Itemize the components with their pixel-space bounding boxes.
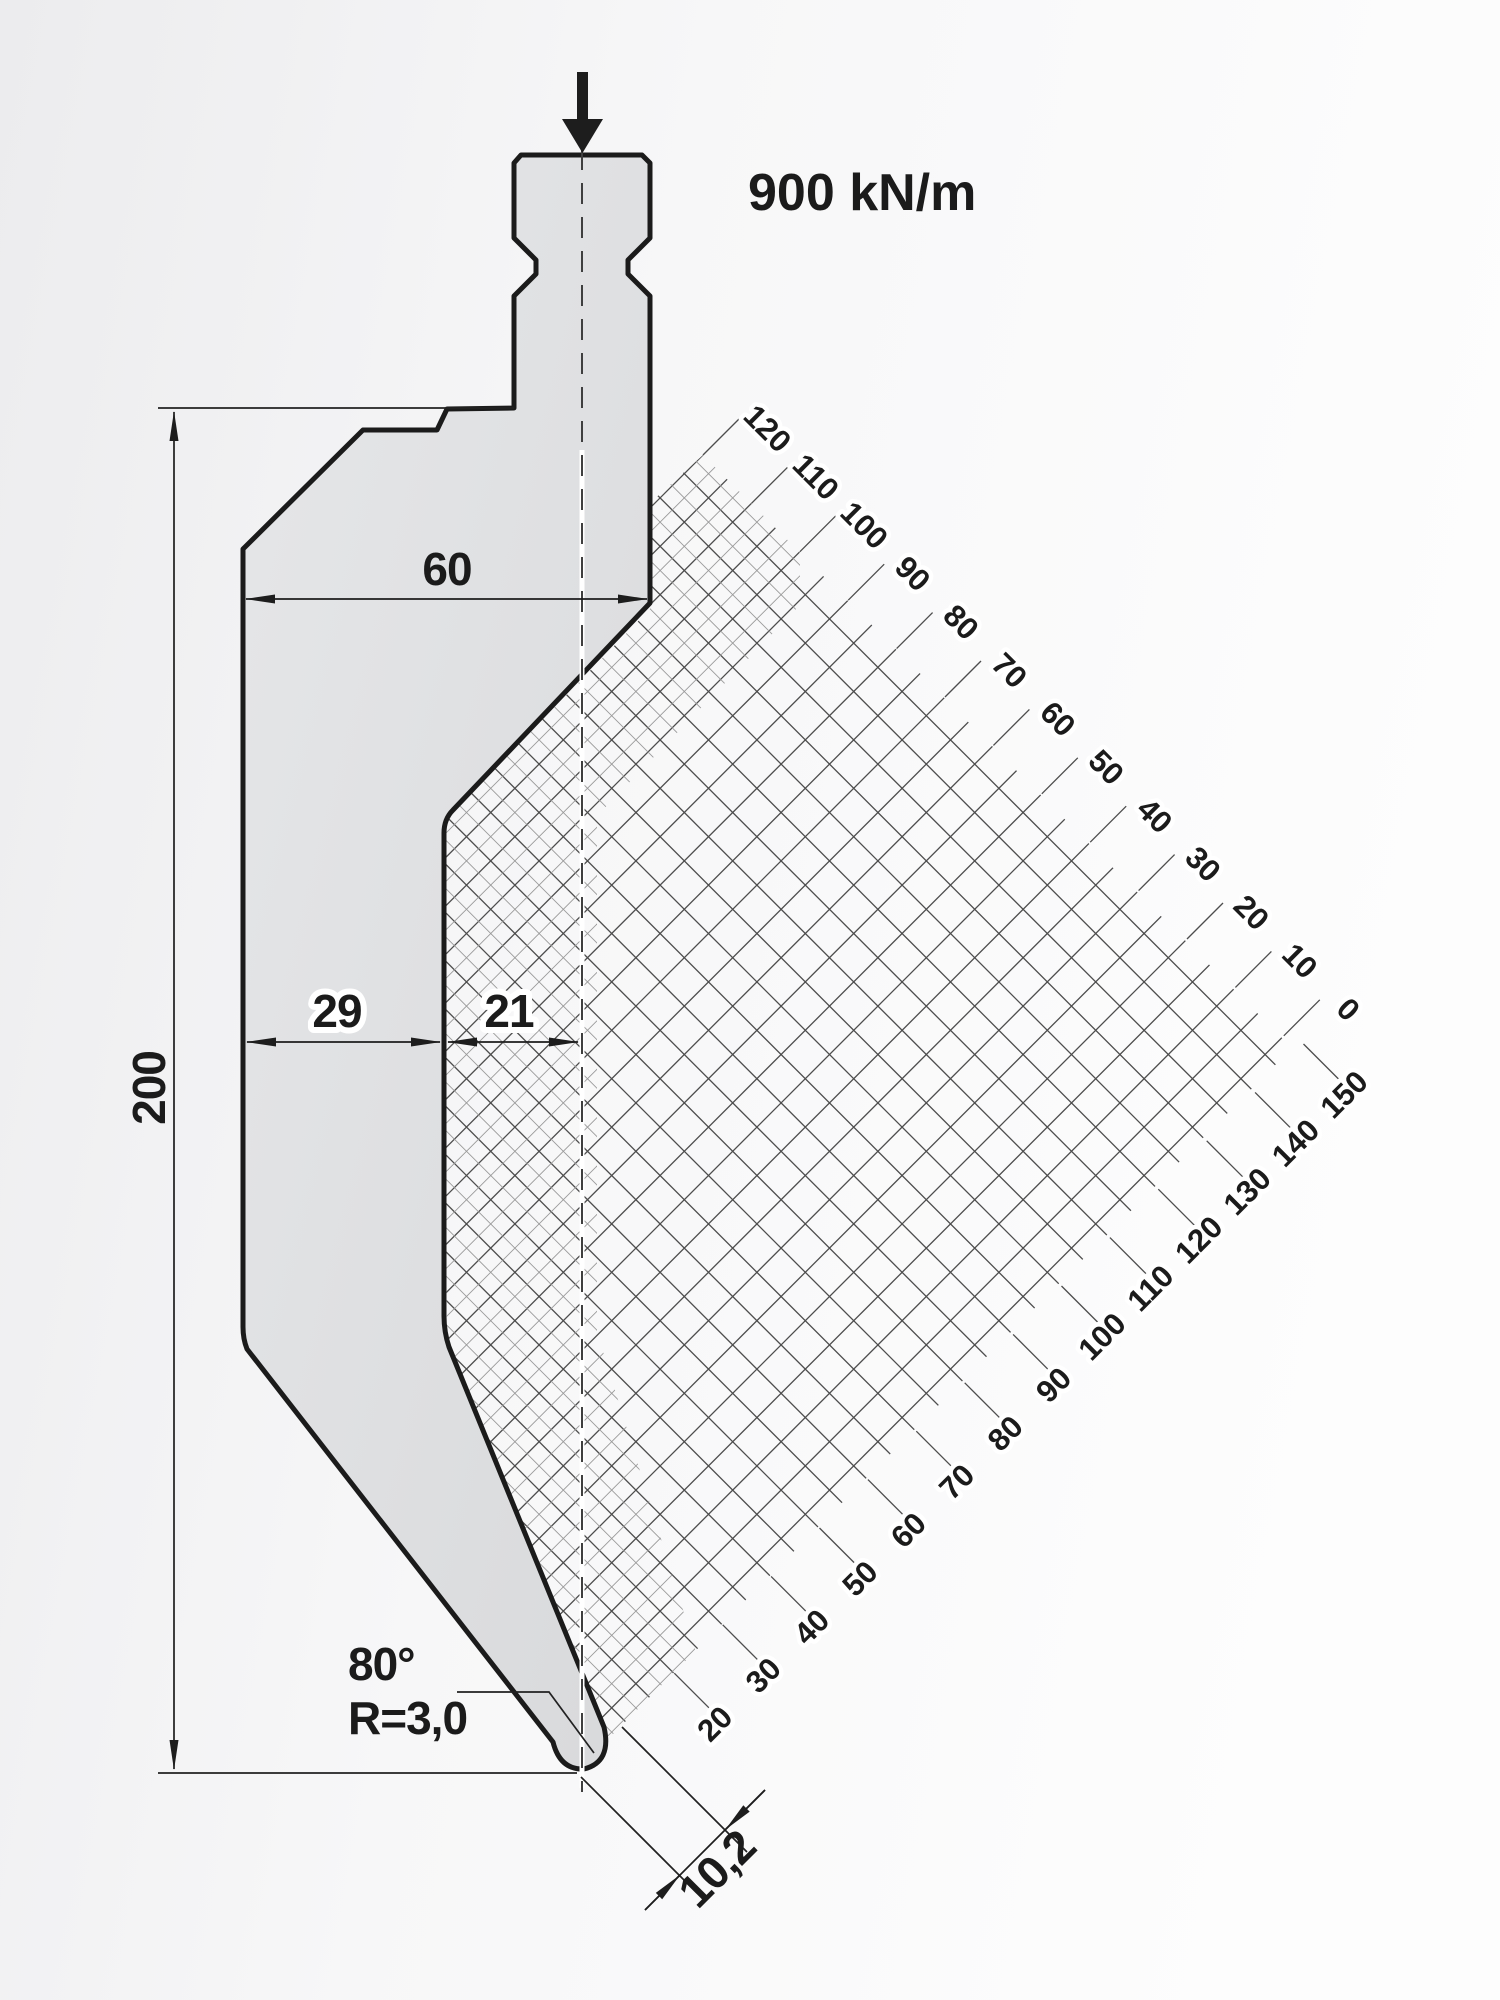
dimension-label: 29 bbox=[312, 985, 361, 1037]
dimension-label: 21 bbox=[484, 985, 534, 1037]
drawing-background bbox=[0, 0, 1500, 2000]
dimension-label: 60 bbox=[422, 543, 471, 595]
tip-angle-label: 80° bbox=[348, 1638, 415, 1690]
tip-radius-label: R=3,0 bbox=[348, 1692, 467, 1744]
dimension-label: 200 bbox=[123, 1051, 175, 1125]
press-brake-tool-drawing: 1201101009080706050403020100 20304050607… bbox=[0, 0, 1500, 2000]
force-label: 900 kN/m bbox=[748, 164, 976, 222]
technical-diagram-canvas: 1201101009080706050403020100 20304050607… bbox=[0, 0, 1500, 2000]
